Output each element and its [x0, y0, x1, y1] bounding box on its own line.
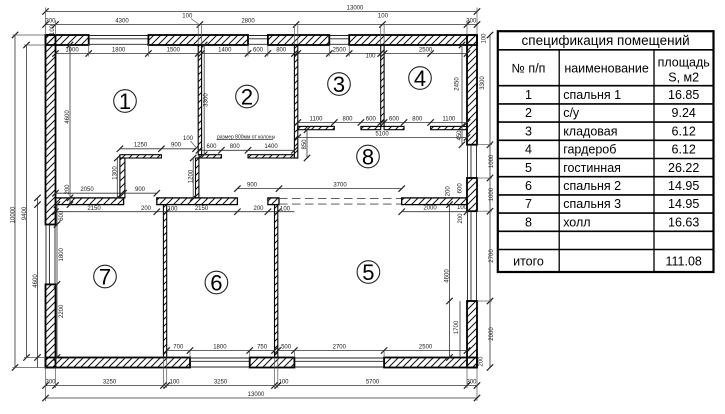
svg-text:1250: 1250	[134, 143, 148, 149]
svg-text:100: 100	[365, 54, 376, 60]
svg-text:площадь: площадь	[658, 56, 710, 70]
svg-text:16.85: 16.85	[668, 88, 699, 102]
svg-text:100: 100	[280, 206, 291, 212]
svg-text:1800: 1800	[112, 47, 126, 53]
svg-text:2: 2	[525, 106, 532, 120]
svg-text:8: 8	[525, 215, 532, 229]
svg-text:с/у: с/у	[563, 106, 580, 120]
svg-text:600: 600	[458, 183, 464, 194]
svg-text:1000: 1000	[489, 187, 495, 201]
svg-text:1800: 1800	[59, 247, 65, 261]
svg-text:200: 200	[479, 356, 485, 367]
svg-text:600: 600	[253, 47, 264, 53]
svg-text:2050: 2050	[80, 187, 94, 193]
svg-text:600: 600	[206, 144, 217, 150]
svg-text:600: 600	[366, 116, 377, 122]
svg-text:2800: 2800	[241, 18, 255, 24]
svg-text:спальня 3: спальня 3	[563, 197, 621, 211]
svg-text:2150: 2150	[195, 206, 209, 212]
svg-text:111.08: 111.08	[666, 254, 702, 268]
svg-text:1: 1	[119, 89, 131, 114]
svg-text:900: 900	[135, 187, 146, 193]
svg-text:7: 7	[525, 197, 532, 211]
svg-text:300: 300	[466, 18, 477, 24]
svg-text:200: 200	[458, 213, 464, 224]
svg-text:гардероб: гардероб	[563, 143, 616, 157]
svg-text:300: 300	[45, 379, 56, 385]
svg-text:100: 100	[457, 205, 468, 211]
svg-text:кладовая: кладовая	[563, 124, 617, 138]
svg-text:2500: 2500	[333, 47, 347, 53]
svg-text:3700: 3700	[333, 183, 347, 189]
svg-text:№ п/п: № п/п	[512, 62, 546, 76]
svg-text:2000: 2000	[489, 327, 495, 341]
svg-text:800: 800	[276, 47, 287, 53]
svg-text:4600: 4600	[33, 274, 39, 288]
svg-text:5: 5	[525, 161, 532, 175]
svg-text:900: 900	[247, 183, 258, 189]
svg-text:10000: 10000	[11, 206, 17, 223]
svg-text:1800: 1800	[213, 344, 227, 350]
svg-text:гостинная: гостинная	[563, 161, 621, 175]
svg-text:1100: 1100	[310, 116, 324, 122]
svg-text:200: 200	[446, 186, 452, 197]
svg-text:100: 100	[278, 379, 289, 385]
svg-text:3: 3	[333, 72, 345, 97]
svg-text:1500: 1500	[167, 47, 181, 53]
svg-text:4: 4	[414, 66, 426, 91]
svg-text:3300: 3300	[204, 93, 210, 107]
svg-text:100: 100	[167, 206, 178, 212]
svg-text:1: 1	[525, 88, 532, 102]
svg-text:600: 600	[389, 116, 400, 122]
svg-text:5100: 5100	[375, 131, 389, 137]
svg-text:холл: холл	[563, 215, 590, 229]
svg-text:1400: 1400	[264, 144, 278, 150]
svg-text:S, м2: S, м2	[668, 71, 699, 85]
svg-text:13000: 13000	[248, 392, 265, 398]
svg-text:800: 800	[230, 144, 241, 150]
svg-text:2450: 2450	[455, 77, 461, 91]
svg-text:4: 4	[525, 143, 532, 157]
svg-text:4600: 4600	[65, 110, 71, 124]
svg-text:2200: 2200	[59, 304, 65, 318]
svg-text:100: 100	[50, 24, 56, 35]
svg-text:500: 500	[281, 344, 292, 350]
svg-text:26.22: 26.22	[668, 161, 699, 175]
svg-text:1000: 1000	[489, 154, 495, 168]
svg-text:800: 800	[412, 116, 423, 122]
svg-text:7: 7	[99, 264, 111, 289]
svg-text:3300: 3300	[480, 76, 486, 90]
svg-text:спальня 2: спальня 2	[563, 179, 621, 193]
svg-text:800: 800	[342, 116, 353, 122]
svg-text:850: 850	[302, 139, 308, 150]
svg-text:13000: 13000	[347, 6, 364, 12]
svg-text:1400: 1400	[218, 47, 232, 53]
svg-text:9.24: 9.24	[672, 106, 696, 120]
svg-text:100: 100	[378, 14, 389, 20]
svg-text:6: 6	[525, 179, 532, 193]
svg-text:2700: 2700	[489, 249, 495, 263]
svg-text:9400: 9400	[22, 206, 28, 220]
svg-text:4600: 4600	[445, 269, 451, 283]
svg-text:3: 3	[525, 124, 532, 138]
svg-text:2150: 2150	[87, 206, 101, 212]
svg-text:700: 700	[173, 344, 184, 350]
svg-text:200: 200	[141, 206, 152, 212]
svg-text:1200: 1200	[188, 169, 194, 183]
svg-text:3250: 3250	[214, 379, 228, 385]
svg-text:14.95: 14.95	[668, 197, 699, 211]
svg-text:1700: 1700	[454, 320, 460, 334]
svg-text:6.12: 6.12	[672, 124, 696, 138]
svg-text:3250: 3250	[103, 379, 117, 385]
svg-text:спецификация помещений: спецификация помещений	[522, 33, 690, 48]
svg-text:300: 300	[466, 379, 477, 385]
svg-text:16.63: 16.63	[668, 215, 699, 229]
svg-text:300: 300	[45, 18, 56, 24]
svg-text:наименование: наименование	[564, 62, 649, 76]
svg-text:2500: 2500	[419, 344, 433, 350]
svg-text:5700: 5700	[366, 379, 380, 385]
svg-text:900: 900	[171, 143, 182, 149]
svg-text:2000: 2000	[423, 206, 437, 212]
svg-text:спальня 1: спальня 1	[563, 88, 621, 102]
svg-text:8: 8	[362, 144, 374, 169]
svg-text:2500: 2500	[419, 47, 433, 53]
svg-text:450: 450	[457, 130, 463, 141]
svg-text:14.95: 14.95	[668, 179, 699, 193]
svg-text:100: 100	[169, 379, 180, 385]
svg-text:2: 2	[241, 84, 253, 109]
svg-text:5: 5	[362, 260, 374, 285]
svg-text:6.12: 6.12	[672, 143, 696, 157]
svg-text:100: 100	[481, 33, 487, 44]
svg-text:итого: итого	[513, 254, 544, 268]
svg-text:4300: 4300	[115, 18, 129, 24]
svg-text:6: 6	[210, 270, 222, 295]
svg-text:200: 200	[253, 206, 264, 212]
svg-text:100: 100	[183, 136, 194, 142]
svg-text:1100: 1100	[442, 116, 456, 122]
svg-text:750: 750	[257, 344, 268, 350]
svg-text:2700: 2700	[333, 344, 347, 350]
svg-text:1300: 1300	[113, 166, 119, 180]
